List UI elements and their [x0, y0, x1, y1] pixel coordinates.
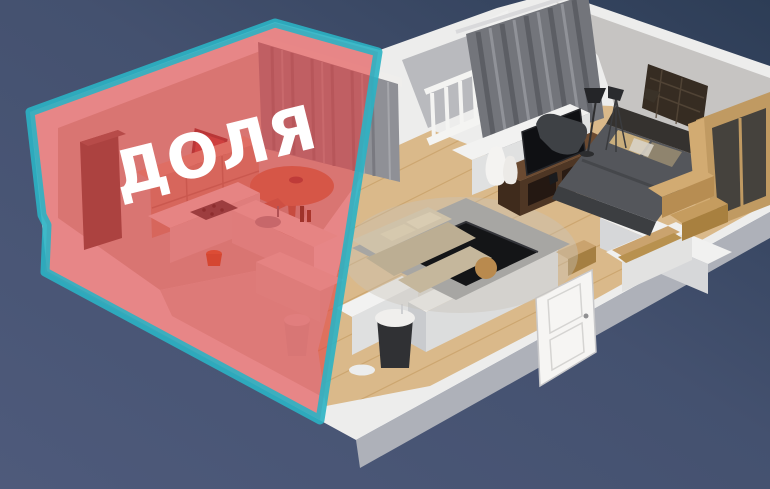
pedestal-sink-bowl	[375, 309, 415, 327]
toilet-lid	[349, 365, 375, 376]
apartment-share-illustration: ДОЛЯ	[0, 0, 770, 489]
scene-canvas: ДОЛЯ	[0, 0, 770, 489]
door-knob	[584, 314, 589, 319]
round-side-table	[475, 257, 497, 279]
